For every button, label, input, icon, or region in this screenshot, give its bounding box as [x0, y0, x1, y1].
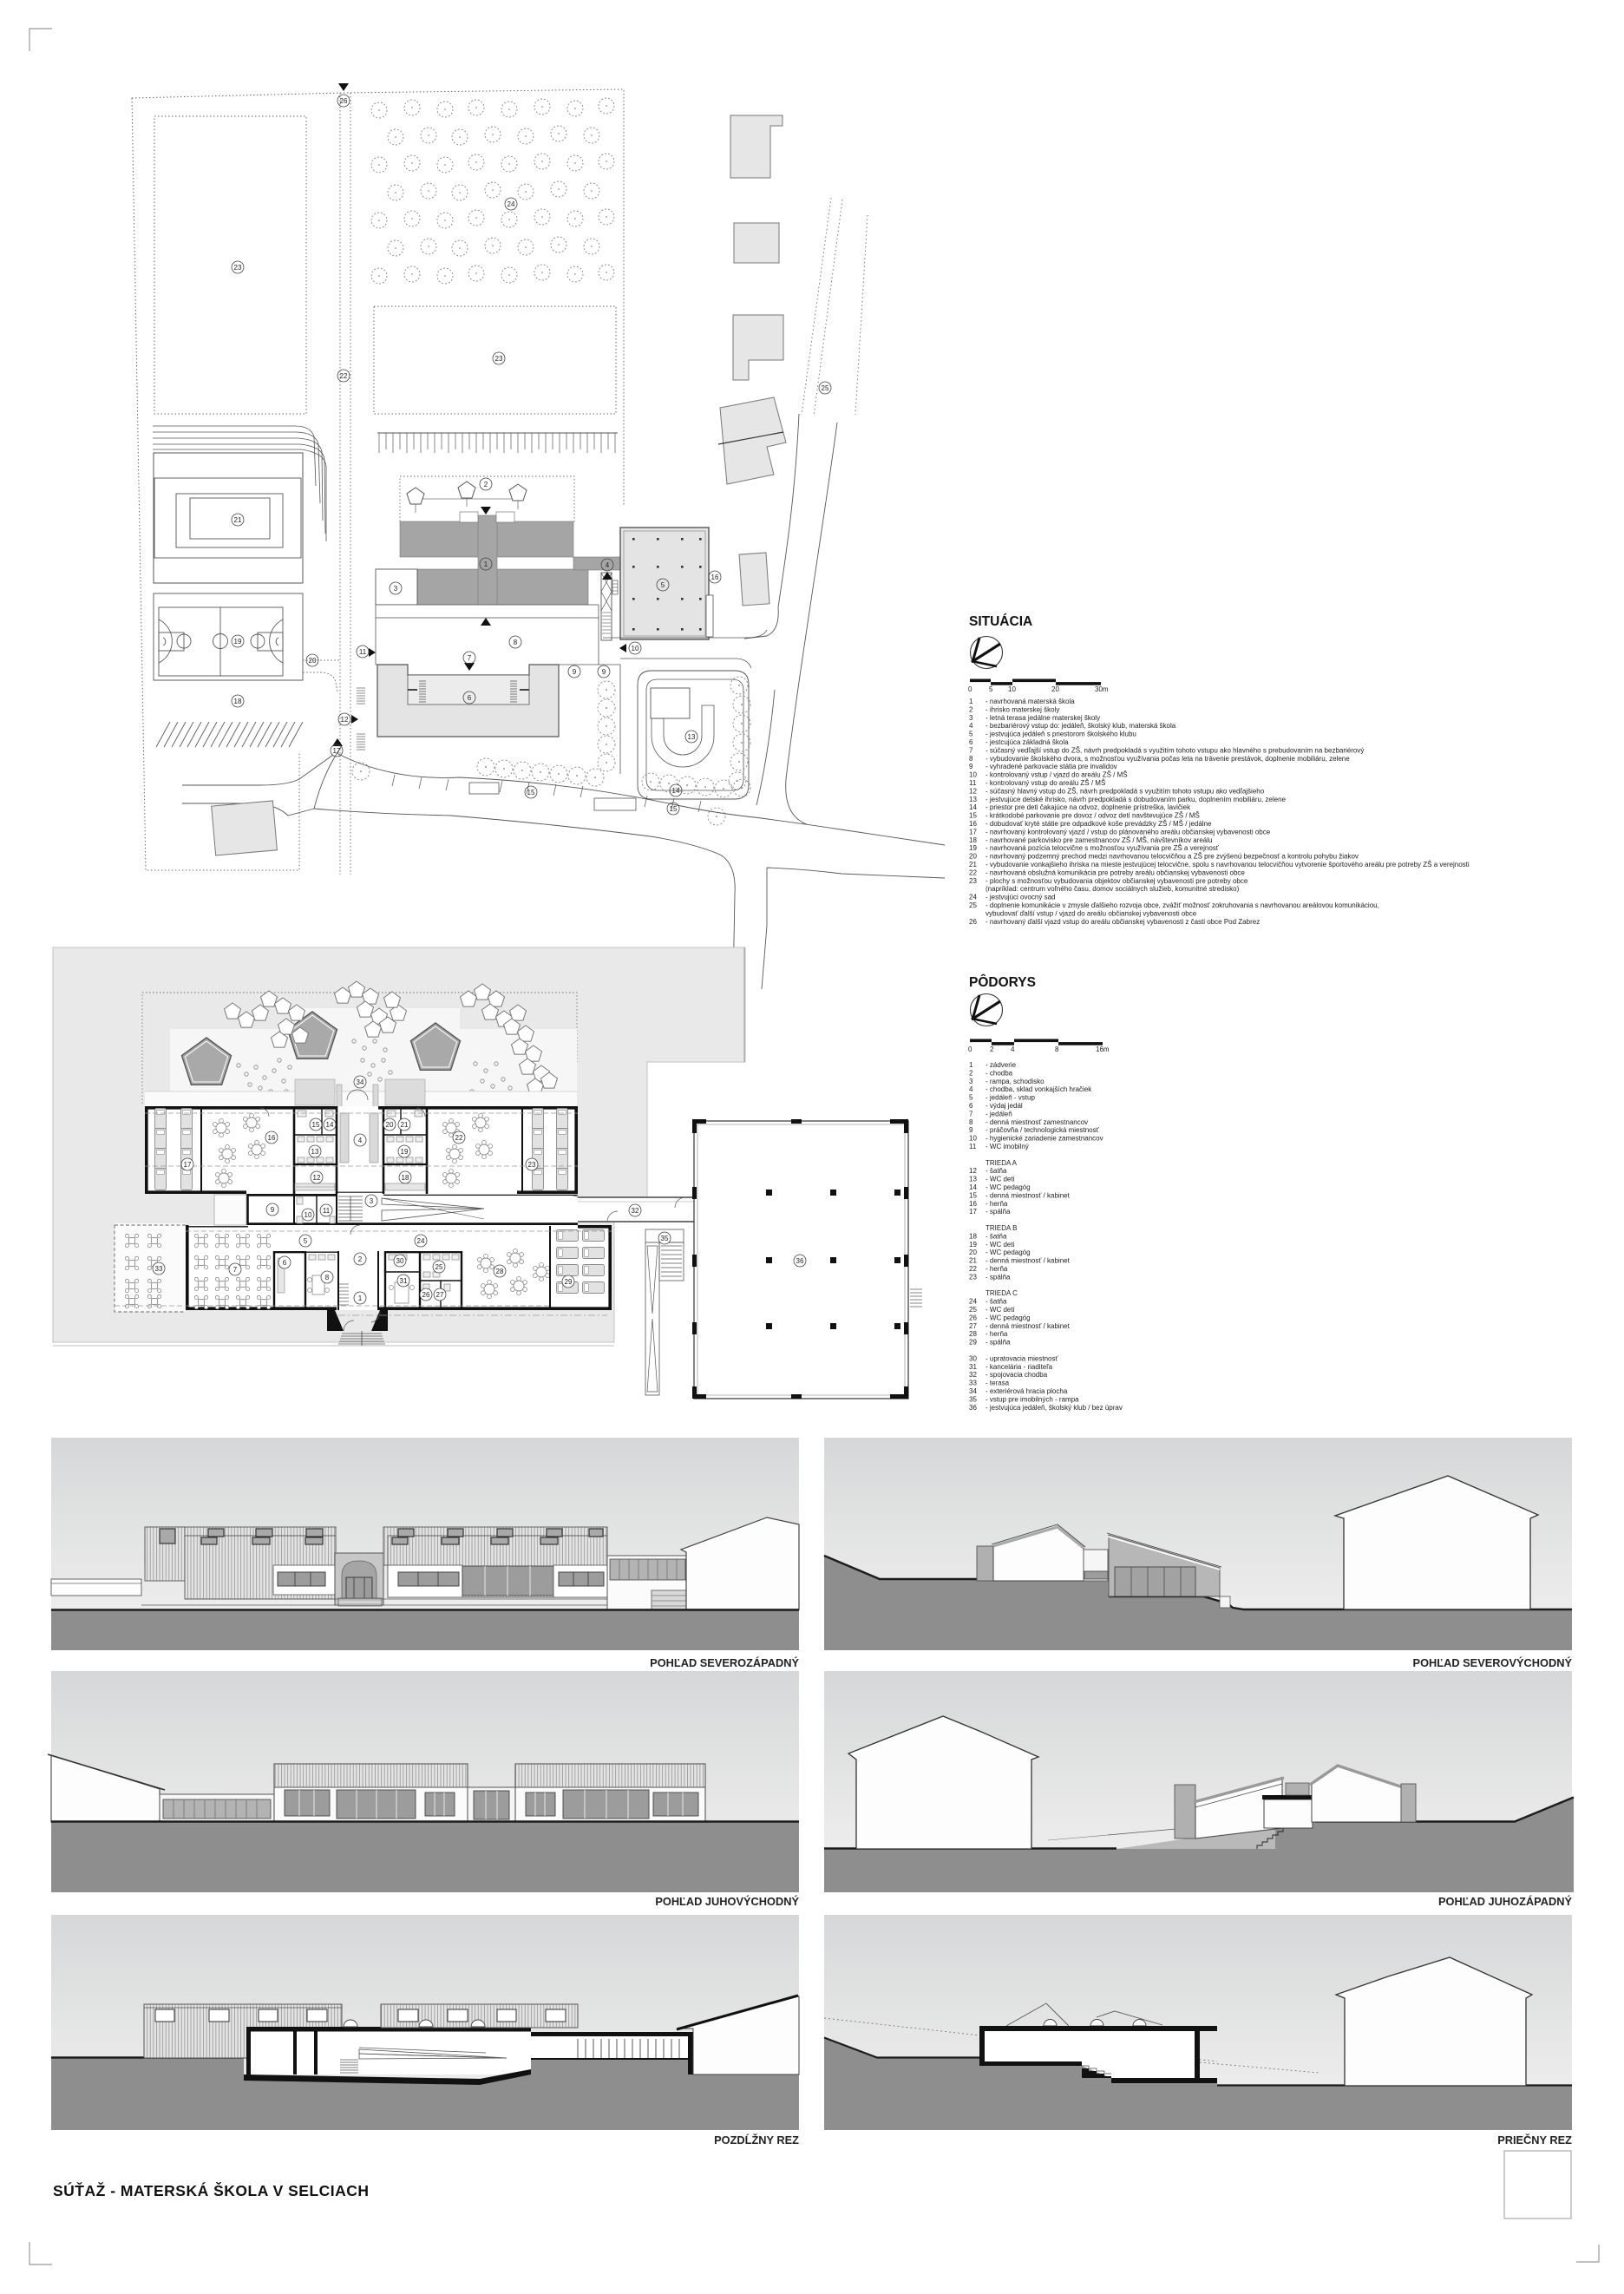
svg-text:vybudovať ďalší vstup / vjazd: vybudovať ďalší vstup / vjazd do areálu … — [986, 909, 1197, 917]
svg-text:- spálňa: - spálňa — [986, 1208, 1011, 1216]
svg-text:22: 22 — [969, 868, 977, 876]
svg-text:31: 31 — [969, 1363, 977, 1371]
svg-text:SÚŤAŽ - MATERSKÁ ŠKOLA V SELC: SÚŤAŽ - MATERSKÁ ŠKOLA V SELCIACH — [53, 2181, 370, 2199]
svg-text:33: 33 — [155, 1265, 163, 1273]
svg-text:8: 8 — [969, 1118, 973, 1126]
svg-text:27: 27 — [436, 1291, 444, 1299]
svg-text:6: 6 — [283, 1259, 287, 1267]
svg-text:19: 19 — [969, 844, 977, 852]
svg-text:- bezbariérový vstup do: jedál: - bezbariérový vstup do: jedáleň, školsk… — [986, 722, 1176, 730]
svg-text:TRIEDA B: TRIEDA B — [986, 1224, 1017, 1232]
svg-text:23: 23 — [495, 355, 503, 363]
svg-text:15: 15 — [670, 805, 678, 813]
svg-text:- kancelária - riaditeľa: - kancelária - riaditeľa — [986, 1363, 1053, 1371]
svg-text:- kontrolovaný vstup / vjazd d: - kontrolovaný vstup / vjazd do areálu Z… — [986, 771, 1128, 779]
svg-text:28: 28 — [969, 1330, 977, 1338]
svg-text:16: 16 — [969, 820, 977, 828]
svg-text:12: 12 — [313, 1174, 321, 1182]
svg-text:14: 14 — [326, 1121, 334, 1129]
svg-text:- navrhovaný kontrolovaný vjaz: - navrhovaný kontrolovaný vjazd / vstup … — [986, 828, 1271, 836]
svg-text:10: 10 — [632, 645, 639, 652]
svg-text:9: 9 — [969, 1126, 973, 1134]
svg-text:22: 22 — [969, 1265, 977, 1273]
svg-text:20: 20 — [309, 657, 317, 665]
svg-text:26: 26 — [422, 1291, 430, 1299]
svg-text:2: 2 — [990, 1045, 994, 1053]
svg-text:- jestvujúci ovocný sad: - jestvujúci ovocný sad — [986, 894, 1055, 901]
svg-text:9: 9 — [602, 668, 606, 676]
svg-text:- upratovacia miestnosť: - upratovacia miestnosť — [986, 1354, 1058, 1362]
svg-text:- jestvujúce detské ihrisko, n: - jestvujúce detské ihrisko, návrh predp… — [986, 796, 1287, 803]
svg-text:18: 18 — [402, 1174, 409, 1182]
svg-text:15: 15 — [969, 1191, 977, 1199]
svg-text:- jedáleň - vstup: - jedáleň - vstup — [986, 1094, 1035, 1102]
svg-text:17: 17 — [969, 828, 977, 836]
svg-text:24: 24 — [969, 1298, 977, 1306]
svg-text:- vybudovanie školského dvora,: - vybudovanie školského dvora, s možnosť… — [986, 755, 1350, 763]
svg-text:10: 10 — [969, 771, 977, 779]
svg-text:11: 11 — [323, 1207, 331, 1215]
svg-text:19: 19 — [401, 1148, 409, 1156]
svg-text:22: 22 — [455, 1134, 463, 1142]
svg-text:3: 3 — [394, 585, 398, 593]
svg-text:13: 13 — [969, 796, 977, 803]
svg-text:- denná miestnosť zamestnancov: - denná miestnosť zamestnancov — [986, 1118, 1088, 1126]
svg-text:- výdaj jedál: - výdaj jedál — [986, 1102, 1023, 1110]
svg-text:24: 24 — [417, 1237, 425, 1245]
svg-text:17: 17 — [969, 1208, 977, 1216]
svg-text:33: 33 — [969, 1380, 977, 1387]
svg-text:6: 6 — [969, 738, 973, 746]
svg-text:17: 17 — [184, 1161, 192, 1169]
svg-text:2: 2 — [358, 1255, 363, 1263]
svg-text:8: 8 — [325, 1274, 330, 1281]
svg-text:- herňa: - herňa — [986, 1265, 1008, 1273]
svg-text:20: 20 — [386, 1121, 394, 1129]
svg-text:29: 29 — [565, 1278, 573, 1286]
svg-text:- jedáleň: - jedáleň — [986, 1110, 1012, 1118]
svg-text:8: 8 — [1055, 1045, 1059, 1053]
svg-text:6: 6 — [969, 1102, 973, 1110]
svg-text:SITUÁCIA: SITUÁCIA — [969, 614, 1032, 629]
svg-text:POZDĹŽNY REZ: POZDĹŽNY REZ — [714, 2133, 799, 2147]
svg-text:35: 35 — [661, 1235, 669, 1242]
svg-text:8: 8 — [514, 639, 518, 646]
svg-text:10: 10 — [1008, 685, 1016, 693]
svg-text:30: 30 — [396, 1257, 404, 1265]
svg-text:- WC imobilný: - WC imobilný — [986, 1143, 1029, 1150]
svg-text:- šatňa: - šatňa — [986, 1167, 1007, 1175]
svg-text:POHĽAD SEVEROVÝCHODNÝ: POHĽAD SEVEROVÝCHODNÝ — [1413, 1656, 1573, 1669]
svg-text:- šatňa: - šatňa — [986, 1232, 1007, 1240]
svg-text:- vyhradené parkovacie státia: - vyhradené parkovacie státia pre invali… — [986, 763, 1117, 770]
svg-text:7: 7 — [468, 654, 472, 662]
svg-text:17: 17 — [333, 747, 341, 755]
svg-text:20: 20 — [969, 853, 977, 861]
svg-text:16: 16 — [268, 1134, 276, 1142]
svg-text:- denná miestnosť / kabinet: - denná miestnosť / kabinet — [986, 1322, 1071, 1330]
svg-text:- zádverie: - zádverie — [986, 1061, 1017, 1069]
svg-text:5: 5 — [304, 1237, 308, 1245]
svg-text:23: 23 — [969, 1273, 977, 1281]
svg-text:9: 9 — [573, 668, 577, 676]
svg-text:- dobudovať kryté státie pre o: - dobudovať kryté státie pre odpadkové k… — [986, 820, 1212, 828]
svg-text:34: 34 — [357, 1078, 364, 1086]
svg-text:8: 8 — [969, 755, 973, 763]
svg-text:9: 9 — [271, 1206, 275, 1214]
svg-text:23: 23 — [528, 1161, 536, 1169]
svg-text:- jestvujúca jedáleň s priesto: - jestvujúca jedáleň s priestorom školsk… — [986, 731, 1136, 738]
svg-text:- navrhovaný podzemný prechod: - navrhovaný podzemný prechod medzi navr… — [986, 853, 1359, 861]
svg-text:12: 12 — [969, 787, 977, 795]
svg-text:28: 28 — [496, 1268, 504, 1275]
svg-text:- spojovacia chodba: - spojovacia chodba — [986, 1371, 1048, 1379]
svg-text:- WC pedagóg: - WC pedagóg — [986, 1183, 1031, 1191]
svg-text:4: 4 — [606, 561, 610, 569]
svg-text:5: 5 — [989, 685, 993, 693]
svg-text:12: 12 — [969, 1167, 977, 1175]
svg-text:5: 5 — [661, 581, 665, 589]
svg-text:- navrhovaná pozícia telocvičn: - navrhovaná pozícia telocvične s možnos… — [986, 844, 1220, 852]
svg-text:2: 2 — [484, 481, 488, 488]
svg-text:- WC deti: - WC deti — [986, 1241, 1015, 1249]
svg-text:4: 4 — [358, 1137, 363, 1144]
svg-text:21: 21 — [234, 516, 242, 524]
svg-text:- navrhovaný ďalší vjazd vstup: - navrhovaný ďalší vjazd vstup do areálu… — [986, 918, 1260, 926]
svg-text:PÔDORYS: PÔDORYS — [969, 974, 1036, 990]
svg-text:18: 18 — [234, 698, 242, 705]
svg-text:24: 24 — [507, 200, 515, 208]
svg-text:POHĽAD SEVEROZÁPADNÝ: POHĽAD SEVEROZÁPADNÝ — [650, 1656, 799, 1669]
svg-text:25: 25 — [822, 384, 829, 392]
svg-text:23: 23 — [969, 877, 977, 885]
svg-text:16m: 16m — [1096, 1045, 1110, 1053]
svg-text:21: 21 — [969, 1257, 977, 1265]
svg-text:- denná miestnosť / kabinet: - denná miestnosť / kabinet — [986, 1191, 1071, 1199]
svg-text:2: 2 — [969, 705, 973, 713]
svg-text:13: 13 — [688, 733, 696, 741]
svg-text:- navrhované parkovisko pre za: - navrhované parkovisko pre zamestnancov… — [986, 836, 1212, 844]
svg-text:- priestor pre deti čakajúce n: - priestor pre deti čakajúce na odvoz, d… — [986, 803, 1191, 811]
svg-text:5: 5 — [969, 731, 973, 738]
svg-text:9: 9 — [969, 763, 973, 770]
svg-text:0: 0 — [968, 1045, 972, 1053]
svg-text:34: 34 — [969, 1387, 977, 1395]
svg-text:- jestcujúca základná škola: - jestcujúca základná škola — [986, 738, 1069, 746]
svg-text:29: 29 — [969, 1339, 977, 1347]
svg-text:- exteriérová hracia plocha: - exteriérová hracia plocha — [986, 1387, 1068, 1395]
svg-text:6: 6 — [468, 694, 472, 702]
svg-text:TRIEDA C: TRIEDA C — [986, 1289, 1018, 1297]
svg-text:32: 32 — [632, 1207, 639, 1215]
svg-text:11: 11 — [969, 1143, 977, 1150]
svg-text:15: 15 — [969, 812, 977, 820]
svg-text:TRIEDA A: TRIEDA A — [986, 1159, 1018, 1167]
svg-text:- terasa: - terasa — [986, 1380, 1010, 1387]
svg-text:3: 3 — [969, 714, 973, 722]
svg-text:- herňa: - herňa — [986, 1330, 1008, 1338]
svg-text:- krátkodobé parkovanie pre do: - krátkodobé parkovanie pre dovoz / odvo… — [986, 812, 1200, 820]
svg-text:- denná miestnosť / kabinet: - denná miestnosť / kabinet — [986, 1257, 1071, 1265]
svg-text:13: 13 — [311, 1148, 319, 1156]
svg-text:- ihrisko materskej školy: - ihrisko materskej školy — [986, 705, 1059, 713]
svg-text:24: 24 — [969, 894, 977, 901]
svg-text:16: 16 — [969, 1200, 977, 1208]
svg-text:- WC pedagóg: - WC pedagóg — [986, 1249, 1031, 1256]
svg-text:15: 15 — [312, 1121, 320, 1129]
svg-text:- súčasný hlavný vstup do ZŠ,: - súčasný hlavný vstup do ZŠ, návrh pred… — [986, 787, 1265, 795]
svg-text:(napríklad: centrum voľného ča: (napríklad: centrum voľného času, domov … — [986, 885, 1240, 893]
svg-text:30m: 30m — [1095, 685, 1109, 693]
svg-text:15: 15 — [527, 789, 535, 796]
svg-text:- WC deti: - WC deti — [986, 1306, 1015, 1314]
svg-text:- navrhovaná obslužná komuniká: - navrhovaná obslužná komunikácia pre po… — [986, 868, 1245, 876]
svg-text:5: 5 — [969, 1094, 973, 1102]
svg-text:21: 21 — [969, 861, 977, 868]
svg-text:- práčovňa / technologická mie: - práčovňa / technologická miestnosť — [986, 1126, 1100, 1134]
svg-text:10: 10 — [969, 1135, 977, 1143]
svg-text:11: 11 — [969, 779, 977, 787]
svg-text:- šatňa: - šatňa — [986, 1298, 1007, 1306]
svg-text:14: 14 — [969, 1183, 977, 1191]
svg-text:- chodba, sklad vonkajších hra: - chodba, sklad vonkajších hračiek — [986, 1085, 1092, 1093]
svg-text:20: 20 — [1051, 685, 1059, 693]
svg-text:32: 32 — [969, 1371, 977, 1379]
svg-text:7: 7 — [969, 1110, 973, 1118]
svg-text:- letná terasa jedálne matersk: - letná terasa jedálne materskej školy — [986, 714, 1100, 722]
svg-text:30: 30 — [969, 1354, 977, 1362]
svg-text:18: 18 — [969, 1232, 977, 1240]
svg-text:- WC pedagóg: - WC pedagóg — [986, 1314, 1031, 1321]
svg-text:21: 21 — [401, 1121, 409, 1129]
svg-text:1: 1 — [358, 1294, 363, 1302]
svg-text:- navrhovaná materská škola: - navrhovaná materská škola — [986, 698, 1075, 705]
svg-text:27: 27 — [969, 1322, 977, 1330]
svg-text:19: 19 — [969, 1241, 977, 1249]
svg-text:26: 26 — [969, 918, 977, 926]
svg-text:12: 12 — [341, 716, 349, 724]
svg-text:- herňa: - herňa — [986, 1200, 1008, 1208]
svg-text:- spálňa: - spálňa — [986, 1273, 1011, 1281]
svg-text:31: 31 — [400, 1277, 408, 1285]
svg-text:0: 0 — [968, 685, 972, 693]
svg-text:4: 4 — [969, 1085, 973, 1093]
svg-text:- rampa, schodisko: - rampa, schodisko — [986, 1078, 1044, 1085]
svg-text:26: 26 — [340, 97, 348, 105]
svg-text:11: 11 — [359, 648, 367, 656]
svg-text:25: 25 — [969, 1306, 977, 1314]
svg-text:1: 1 — [484, 560, 488, 568]
svg-text:14: 14 — [672, 787, 680, 795]
svg-text:4: 4 — [969, 722, 973, 730]
svg-text:- súčasný vedľajší vstup do ZŠ: - súčasný vedľajší vstup do ZŠ, návrh pr… — [986, 746, 1364, 754]
svg-text:- hygienické zariadenie zamest: - hygienické zariadenie zamestnancov — [986, 1135, 1103, 1143]
svg-text:36: 36 — [969, 1404, 977, 1412]
svg-text:PRIEČNY REZ: PRIEČNY REZ — [1497, 2133, 1572, 2147]
svg-text:- chodba: - chodba — [986, 1069, 1013, 1077]
svg-text:36: 36 — [796, 1257, 804, 1265]
svg-text:14: 14 — [969, 803, 977, 811]
svg-text:7: 7 — [969, 746, 973, 754]
svg-text:25: 25 — [969, 901, 977, 909]
svg-text:26: 26 — [969, 1314, 977, 1321]
svg-text:- WC deti: - WC deti — [986, 1176, 1015, 1183]
svg-text:13: 13 — [969, 1176, 977, 1183]
svg-text:18: 18 — [969, 836, 977, 844]
svg-text:25: 25 — [435, 1263, 443, 1271]
svg-text:35: 35 — [969, 1395, 977, 1403]
svg-text:- vybudovanie vonkajšieho ihri: - vybudovanie vonkajšieho ihriska na mie… — [986, 861, 1470, 868]
svg-text:- doplnenie komunikácie v zmys: - doplnenie komunikácie v zmysle ďalšieh… — [986, 901, 1379, 909]
svg-text:2: 2 — [969, 1069, 973, 1077]
svg-text:POHĽAD JUHOZÁPADNÝ: POHĽAD JUHOZÁPADNÝ — [1438, 1895, 1573, 1908]
svg-text:- plochy s možnosťou vybudovan: - plochy s možnosťou vybudovania objekto… — [986, 877, 1248, 885]
svg-text:16: 16 — [711, 573, 719, 581]
svg-text:7: 7 — [233, 1266, 238, 1274]
svg-text:3: 3 — [969, 1078, 973, 1085]
svg-text:10: 10 — [304, 1211, 312, 1219]
svg-text:20: 20 — [969, 1249, 977, 1256]
svg-text:19: 19 — [234, 638, 242, 646]
svg-text:- vstup pre imobilných - ramp: - vstup pre imobilných - rampa — [986, 1395, 1079, 1403]
svg-text:23: 23 — [234, 264, 242, 272]
svg-text:- jestvujúca jedáleň, školský: - jestvujúca jedáleň, školský klub / bez… — [986, 1404, 1123, 1412]
svg-text:1: 1 — [969, 698, 973, 705]
svg-text:22: 22 — [340, 372, 348, 380]
svg-text:POHĽAD JUHOVÝCHODNÝ: POHĽAD JUHOVÝCHODNÝ — [655, 1895, 799, 1908]
svg-text:4: 4 — [1011, 1045, 1015, 1053]
svg-text:- spálňa: - spálňa — [986, 1339, 1011, 1347]
svg-text:1: 1 — [969, 1061, 973, 1069]
svg-text:- kontrolovaný vstup do areálu: - kontrolovaný vstup do areálu ZŠ / MŠ — [986, 779, 1105, 787]
svg-text:3: 3 — [370, 1197, 374, 1205]
